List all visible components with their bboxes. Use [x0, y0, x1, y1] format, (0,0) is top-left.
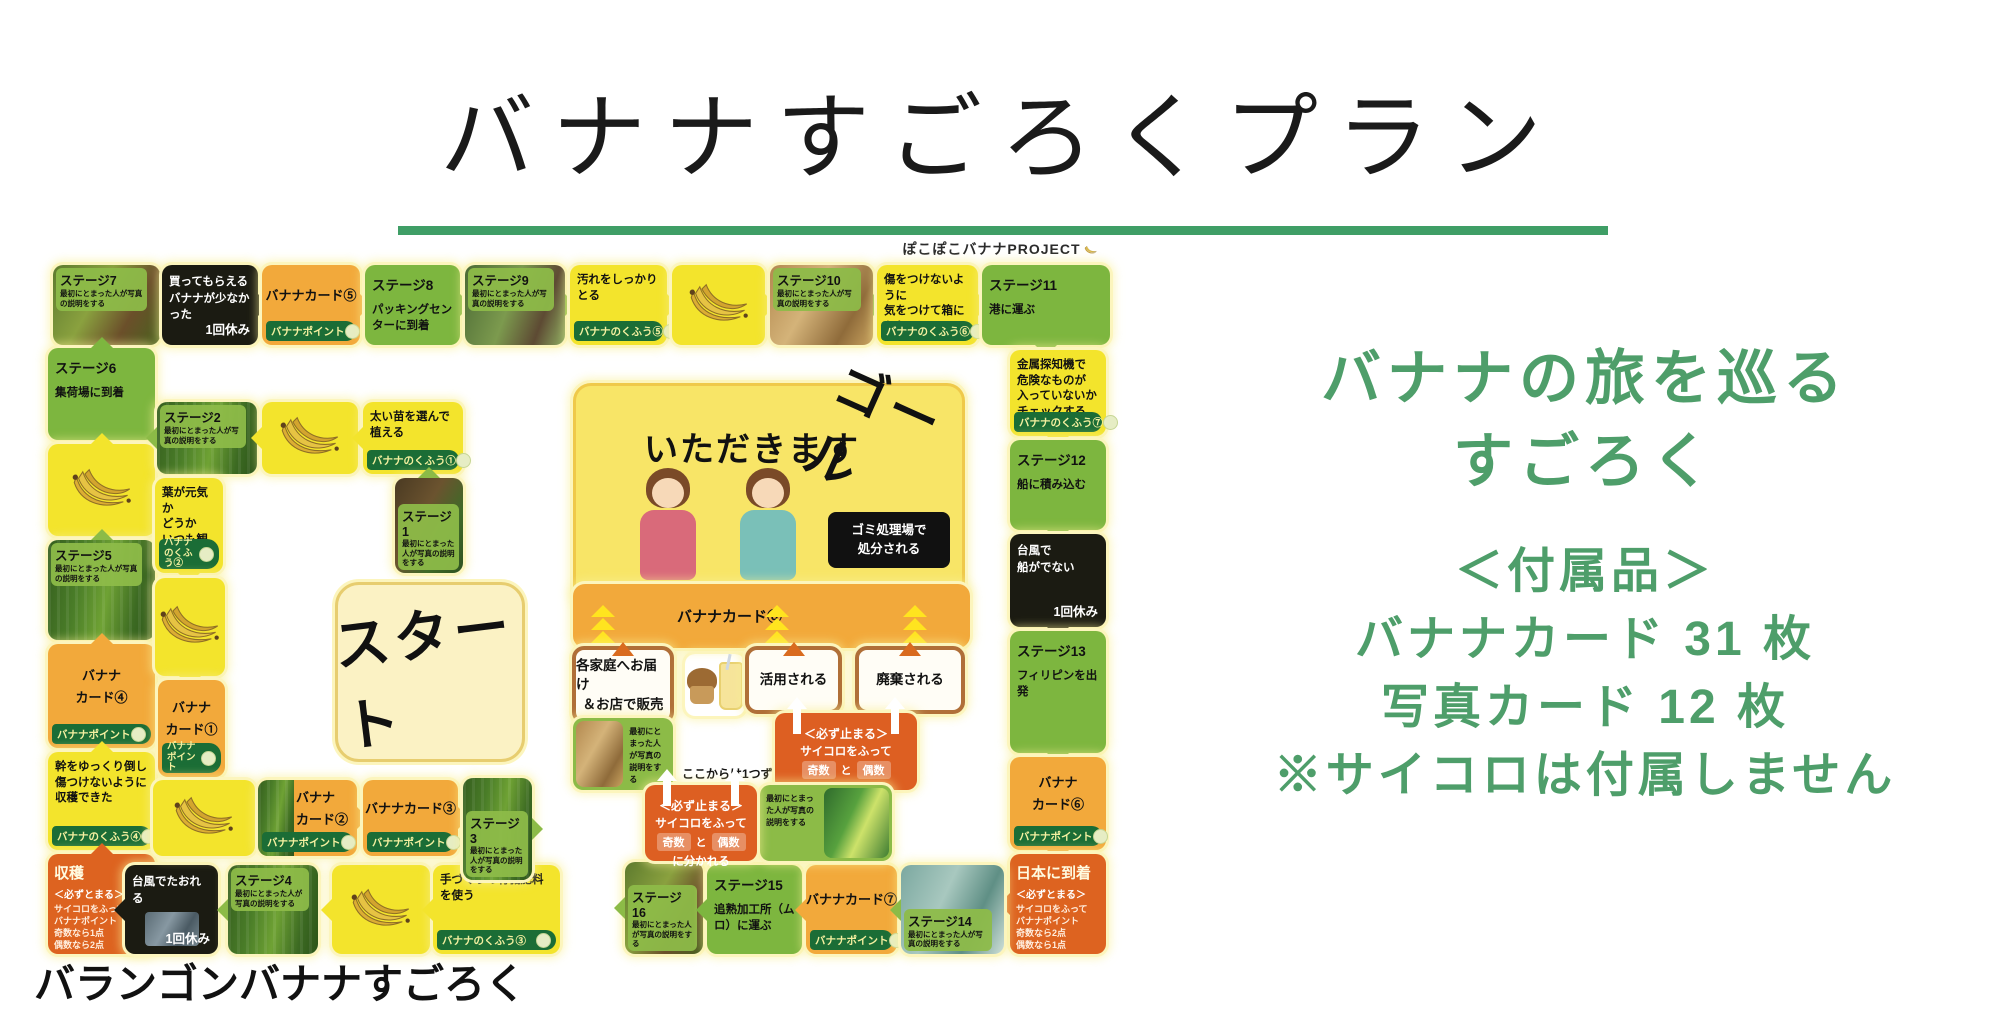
- disposal-line: ゴミ処理場で: [834, 521, 944, 540]
- path-arrow-icon: [91, 832, 113, 854]
- tile-stage-11: ステージ11港に運ぶ: [982, 265, 1110, 345]
- tile-text-line: カード②: [296, 809, 348, 828]
- title-underline: [398, 226, 1608, 235]
- tile-text-line: 傷つけないように: [55, 776, 149, 792]
- stage-label: ステージ3最初にとまった人が写真の説明をする: [466, 811, 528, 877]
- tile-band: バナナのくふう⑥: [881, 321, 974, 341]
- stage-rule: 最初にとまった人が写真の説明をする: [777, 289, 857, 309]
- stage-label: ステージ4最初にとまった人が写真の説明をする: [231, 868, 309, 911]
- stage-rule: 最初にとまった人が写真の説明をする: [235, 889, 305, 909]
- tile-text-line: 汚れをしっかりとる: [577, 273, 661, 304]
- path-arrow-icon: [91, 422, 113, 444]
- tile-discarded: 廃棄される: [855, 646, 965, 714]
- rest-note: 1回休み: [1054, 601, 1098, 620]
- path-arrow-icon: [603, 897, 625, 919]
- band-badge-icon: [536, 933, 551, 948]
- band-badge-icon: [345, 324, 360, 339]
- tile-delivery: 各家庭へお届け＆お店で販売: [572, 646, 674, 724]
- tile-text-line: カード⑥: [1032, 794, 1084, 813]
- up-arrow-icon: [725, 769, 745, 803]
- tile-event-typhoon: 台風でたおれる1回休み: [125, 865, 218, 954]
- tile-text-line: 台風でたおれる: [132, 874, 211, 907]
- stage-name: ステージ10: [777, 270, 857, 289]
- tile-snack-illustration: [685, 654, 745, 716]
- tile-text-line: どうか: [162, 517, 217, 533]
- split-line: サイコロをふって: [645, 815, 757, 831]
- stage-desc: 追熟加工所（ムロ）に運ぶ: [714, 903, 795, 934]
- tile-band: バナナのくふう①: [367, 450, 459, 470]
- slide: バナナすごろくプラン ぽこぽこバナナPROJECT バナナの旅を巡る すごろく …: [0, 0, 2000, 1000]
- up-arrow-icon: [885, 697, 905, 731]
- stage-rule: 最初にとまった人が写真の説明をする: [470, 846, 524, 875]
- stage-name: ステージ5: [55, 545, 138, 564]
- tile-split-upper: ＜必ず止まる＞サイコロをふって奇数と偶数に分かれる: [775, 713, 917, 790]
- panel-line-1: バナナの旅を巡る: [1175, 338, 1995, 421]
- odd-chip: 奇数: [802, 761, 836, 779]
- stage-label: ステージ9最初にとまった人が写真の説明をする: [468, 268, 554, 311]
- banana-illustration: [278, 415, 342, 461]
- path-arrow-icon: [310, 899, 332, 921]
- band-label: バナナのくふう①: [372, 453, 456, 468]
- boy-figure: [728, 468, 808, 603]
- split-chips: 奇数と偶数: [775, 761, 917, 779]
- stage-rule: 最初にとまった人が写真の説明をする: [402, 539, 455, 568]
- band-badge-icon: [446, 835, 461, 850]
- tile-text-line: バナナ: [172, 697, 211, 716]
- band-label: バナナポイント: [271, 324, 345, 339]
- tile-text-line: 入っていないか: [1017, 389, 1100, 405]
- photo-texture: [576, 721, 623, 787]
- right-panel: バナナの旅を巡る すごろく ＜付属品＞ バナナカード 31 枚 写真カード 12…: [1175, 338, 1995, 810]
- path-arrow-icon: [532, 818, 554, 840]
- stage-label: ステージ7最初にとまった人が写真の説明をする: [56, 268, 147, 311]
- split-chips: 奇数と偶数: [645, 833, 757, 851]
- page-title: バナナすごろくプラン: [0, 62, 2000, 198]
- band-badge-icon: [341, 835, 356, 850]
- up-arrow-icon: [657, 769, 677, 803]
- stage-label: ステージ10最初にとまった人が写真の説明をする: [773, 268, 861, 311]
- rest-note: 1回休み: [206, 319, 250, 338]
- juice-glass-icon: [719, 662, 743, 710]
- start-label: スタート: [329, 580, 531, 763]
- up-arrow-icon: [787, 697, 807, 731]
- path-arrow-icon: [240, 427, 262, 449]
- stage-desc: 船に積み込む: [1017, 478, 1099, 494]
- tile-text-line: 台風で: [1017, 543, 1099, 560]
- stage-name: ステージ9: [472, 270, 550, 289]
- disposal-line: 処分される: [834, 540, 944, 559]
- tile-text-line: 各家庭へお届け: [576, 656, 670, 695]
- panel-line-4: バナナカード 31 枚: [1175, 606, 1995, 674]
- band-label: バナナポイント: [167, 742, 201, 773]
- path-arrow-icon: [411, 899, 433, 921]
- disposal-box: ゴミ処理場で処分される: [828, 512, 950, 568]
- tile-text-line: 船がでない: [1017, 560, 1099, 577]
- tile-band: バナナのくふう③: [437, 930, 556, 950]
- tile-kufu-2: 葉が元気かどうかいつも観察バナナのくふう②: [155, 478, 223, 573]
- tile-card-3: バナナカード③バナナポイント: [363, 780, 458, 856]
- rest-note: 1回休み: [166, 928, 210, 947]
- stage-name: ステージ1: [402, 506, 455, 539]
- stage-name: ステージ2: [164, 407, 242, 426]
- path-arrow-icon: [91, 326, 113, 348]
- tile-text-line: 偶数なら1点: [1016, 940, 1100, 952]
- project-subtitle-text: ぽこぽこバナナPROJECT: [902, 241, 1080, 257]
- corner-title: 日本に到着: [1016, 862, 1100, 883]
- band-badge-icon: [1093, 829, 1108, 844]
- boy-face: [752, 478, 784, 508]
- stage-label: ステージ2最初にとまった人が写真の説明をする: [160, 405, 246, 448]
- tile-stage-12: ステージ12船に積み込む: [1010, 440, 1106, 530]
- path-arrow-icon: [784, 899, 806, 921]
- project-subtitle: ぽこぽこバナナPROJECT: [0, 239, 2000, 259]
- stage-name: ステージ7: [60, 270, 143, 289]
- stage-desc: 港に運ぶ: [989, 303, 1103, 319]
- tile-text-line: 奇数なら2点: [1016, 928, 1100, 940]
- even-chip: 偶数: [857, 761, 891, 779]
- stage-name: ステージ14: [908, 911, 988, 930]
- girl-face: [652, 478, 684, 508]
- board-start: スタート: [335, 582, 525, 762]
- tile-text-line: を使う: [440, 889, 554, 905]
- tile-event-few-bananas: 買ってもらえるバナナが少なかった1回休み: [162, 265, 258, 345]
- corner-sub: ＜必ずとまる＞: [1016, 886, 1100, 901]
- tile-text-line: カード①: [165, 719, 217, 738]
- tile-stage-1: ステージ1最初にとまった人が写真の説明をする: [395, 478, 463, 573]
- path-arrow-icon: [879, 899, 901, 921]
- stage-label: ステージ14最初にとまった人が写真の説明をする: [904, 909, 992, 952]
- goal-label: ゴール: [794, 343, 987, 539]
- stage-name: ステージ6: [55, 357, 148, 377]
- panel-line-6: ※サイコロは付属しません: [1175, 742, 1995, 810]
- band-label: バナナのくふう③: [442, 933, 526, 948]
- stage-rule: 最初にとまった人が写真の説明をする: [164, 426, 242, 446]
- tile-banana-inner-left: [155, 578, 225, 676]
- stage-name: ステージ16: [632, 887, 693, 920]
- path-arrow-icon: [103, 899, 125, 921]
- tile-text-line: 太い苗を選んで植える: [370, 410, 457, 441]
- kids-illustration: [628, 468, 818, 603]
- tile-photo: [576, 721, 623, 787]
- tile-photo-crates: 最初にとまった人が写真の説明をする: [760, 785, 892, 861]
- tile-text-line: ＆お店で販売: [583, 695, 664, 715]
- path-arrow-icon: [418, 456, 440, 478]
- tile-text-line: バナナ: [82, 665, 121, 684]
- split-line: サイコロをふって: [775, 743, 917, 759]
- banana-illustration: [172, 795, 236, 841]
- band-label: バナナポイント: [1019, 829, 1093, 844]
- tile-band: バナナのくふう⑤: [574, 321, 663, 341]
- stage-desc: パッキングセンターに到着: [372, 303, 453, 334]
- tile-text-line: 活用される: [760, 670, 828, 690]
- tile-band: バナナポイント: [367, 832, 454, 852]
- tile-arrive-japan: 日本に到着＜必ずとまる＞サイコロをふってバナナポイント奇数なら2点偶数なら1点: [1010, 854, 1106, 954]
- band-label: バナナのくふう②: [164, 538, 199, 569]
- tile-card-6: バナナカード⑥バナナポイント: [1010, 757, 1106, 850]
- muffin-cup-icon: [690, 686, 714, 704]
- stage-label: ステージ1最初にとまった人が写真の説明をする: [398, 504, 459, 570]
- path-arrow-icon: [91, 518, 113, 540]
- chip-joiner: と: [841, 762, 852, 778]
- path-arrow-icon: [91, 622, 113, 644]
- stage-name: ステージ3: [470, 813, 524, 846]
- board-goal: いただきますゴールゴミ処理場で処分される: [573, 383, 965, 608]
- tile-band: バナナポイント: [810, 930, 893, 950]
- tile-text-line: 傷をつけないように: [884, 273, 972, 304]
- tile-band: バナナのくふう⑦: [1014, 412, 1102, 432]
- tile-kufu-5: 汚れをしっかりとるバナナのくふう⑤: [570, 265, 667, 345]
- tile-band: バナナのくふう②: [159, 539, 219, 569]
- band-label: バナナポイント: [372, 835, 446, 850]
- panel-line-5: 写真カード 12 枚: [1175, 674, 1995, 742]
- chip-joiner: と: [696, 834, 707, 850]
- odd-chip: 奇数: [657, 833, 691, 851]
- band-label: バナナのくふう⑤: [579, 324, 663, 339]
- tile-kufu-7: 金属探知機で危険なものが入っていないかチェックするバナナのくふう⑦: [1010, 350, 1106, 436]
- band-badge-icon: [131, 727, 146, 742]
- tile-card-5: バナナカード⑤バナナポイント: [262, 265, 360, 345]
- stage-name: ステージ13: [1017, 640, 1099, 660]
- tile-stage-10: ステージ10最初にとまった人が写真の説明をする: [770, 265, 873, 345]
- panel-spacer: [1175, 504, 1995, 538]
- stage-desc: 集荷場に到着: [55, 386, 148, 402]
- tile-text-line: バナナ: [296, 787, 335, 806]
- banana-icon: [1084, 243, 1098, 259]
- tile-text-line: バナナカード⑤: [265, 285, 356, 304]
- banana-illustration: [158, 604, 222, 650]
- tile-kufu-6: 傷をつけないように気をつけて箱に入れるバナナのくふう⑥: [877, 265, 978, 345]
- girl-body: [640, 510, 696, 580]
- tile-stage-4: ステージ4最初にとまった人が写真の説明をする: [228, 865, 318, 954]
- tile-text-line: 危険なものが: [1017, 374, 1100, 390]
- tile-split-lower: ＜必ず止まる＞サイコロをふって奇数と偶数に分かれる: [645, 785, 757, 861]
- boy-body: [740, 510, 796, 580]
- tile-text-line: 幹をゆっくり倒し: [55, 760, 149, 776]
- tile-stage-9: ステージ9最初にとまった人が写真の説明をする: [465, 265, 565, 345]
- tile-stage-14: ステージ14最初にとまった人が写真の説明をする: [901, 865, 1004, 954]
- tile-text-line: 収穫できた: [55, 791, 149, 807]
- band-label: バナナポイント: [815, 933, 889, 948]
- stage-name: ステージ8: [372, 274, 453, 294]
- tile-card-2: バナナカード②バナナポイント: [258, 780, 357, 856]
- banana-illustration: [70, 467, 134, 513]
- tile-banana-inner-bottom: [153, 780, 255, 856]
- stage-name: ステージ4: [235, 870, 305, 889]
- tile-banana-top: [672, 265, 765, 345]
- tile-band: バナナポイント: [266, 321, 356, 341]
- band-badge-icon: [456, 453, 471, 468]
- tile-text-line: 廃棄される: [876, 670, 944, 690]
- path-arrow-icon: [206, 899, 228, 921]
- tile-text-line: バナナカード③: [365, 798, 456, 817]
- band-badge-icon: [201, 751, 216, 766]
- stage-label: ステージ5最初にとまった人が写真の説明をする: [51, 543, 142, 586]
- panel-line-2: すごろく: [1175, 421, 1995, 504]
- tile-stage-8: ステージ8パッキングセンターに到着: [365, 265, 460, 345]
- tile-text-line: カード④: [75, 687, 127, 706]
- tile-kufu-1: 太い苗を選んで植えるバナナのくふう①: [363, 402, 463, 474]
- tile-band: バナナポイント: [162, 743, 221, 773]
- tile-stage-13: ステージ13フィリピンを出発: [1010, 631, 1106, 753]
- banana-illustration: [687, 282, 751, 328]
- stage-name: ステージ12: [1017, 449, 1099, 469]
- tile-text-line: 葉が元気か: [162, 486, 217, 517]
- tile-band: バナナポイント: [262, 832, 353, 852]
- path-arrow-icon: [135, 427, 157, 449]
- tile-event-ship: 台風で船がでない1回休み: [1010, 534, 1106, 627]
- stage-rule: 最初にとまった人が写真の説明をする: [632, 920, 693, 949]
- band-badge-icon: [199, 547, 214, 562]
- stage-name: ステージ15: [714, 874, 795, 894]
- photo-rule-label: 最初にとまった人が写真の説明をする: [763, 788, 821, 858]
- band-badge-icon: [1103, 415, 1118, 430]
- tile-text-line: バナナ: [1038, 772, 1077, 791]
- tile-text-line: 金属探知機で: [1017, 358, 1100, 374]
- board: ステージ7最初にとまった人が写真の説明をする買ってもらえるバナナが少なかった1回…: [40, 262, 1120, 968]
- band-label: バナナのくふう⑦: [1019, 415, 1103, 430]
- stage-rule: 最初にとまった人が写真の説明をする: [60, 289, 143, 309]
- board-caption: バランゴンバナナすごろく: [34, 950, 526, 1010]
- tile-card-1: バナナカード①バナナポイント: [158, 680, 225, 777]
- band-label: バナナポイント: [267, 835, 341, 850]
- stage-name: ステージ11: [989, 274, 1103, 294]
- stage-rule: 最初にとまった人が写真の説明をする: [472, 289, 550, 309]
- tile-band: バナナポイント: [1014, 826, 1102, 846]
- band-label: バナナのくふう⑥: [886, 324, 970, 339]
- stage-rule: 最初にとまった人が写真の説明をする: [908, 930, 988, 950]
- stage-rule: 最初にとまった人が写真の説明をする: [55, 564, 138, 584]
- tile-text-line: 買ってもらえる: [169, 274, 251, 291]
- tile-text-line: バナナポイント: [1016, 916, 1100, 928]
- split-line: に分かれる: [645, 853, 757, 869]
- banana-illustration: [349, 887, 413, 933]
- panel-line-3: ＜付属品＞: [1175, 538, 1995, 606]
- path-arrow-icon: [91, 730, 113, 752]
- tile-photo: [824, 788, 889, 858]
- tile-text-line: サイコロをふって: [1016, 904, 1100, 916]
- stage-desc: フィリピンを出発: [1017, 669, 1099, 700]
- even-chip: 偶数: [712, 833, 746, 851]
- photo-texture: [824, 788, 889, 858]
- path-arrow-icon: [341, 427, 363, 449]
- path-arrow-icon: [685, 899, 707, 921]
- tile-stage-3: ステージ3最初にとまった人が写真の説明をする: [463, 778, 532, 880]
- girl-figure: [628, 468, 708, 603]
